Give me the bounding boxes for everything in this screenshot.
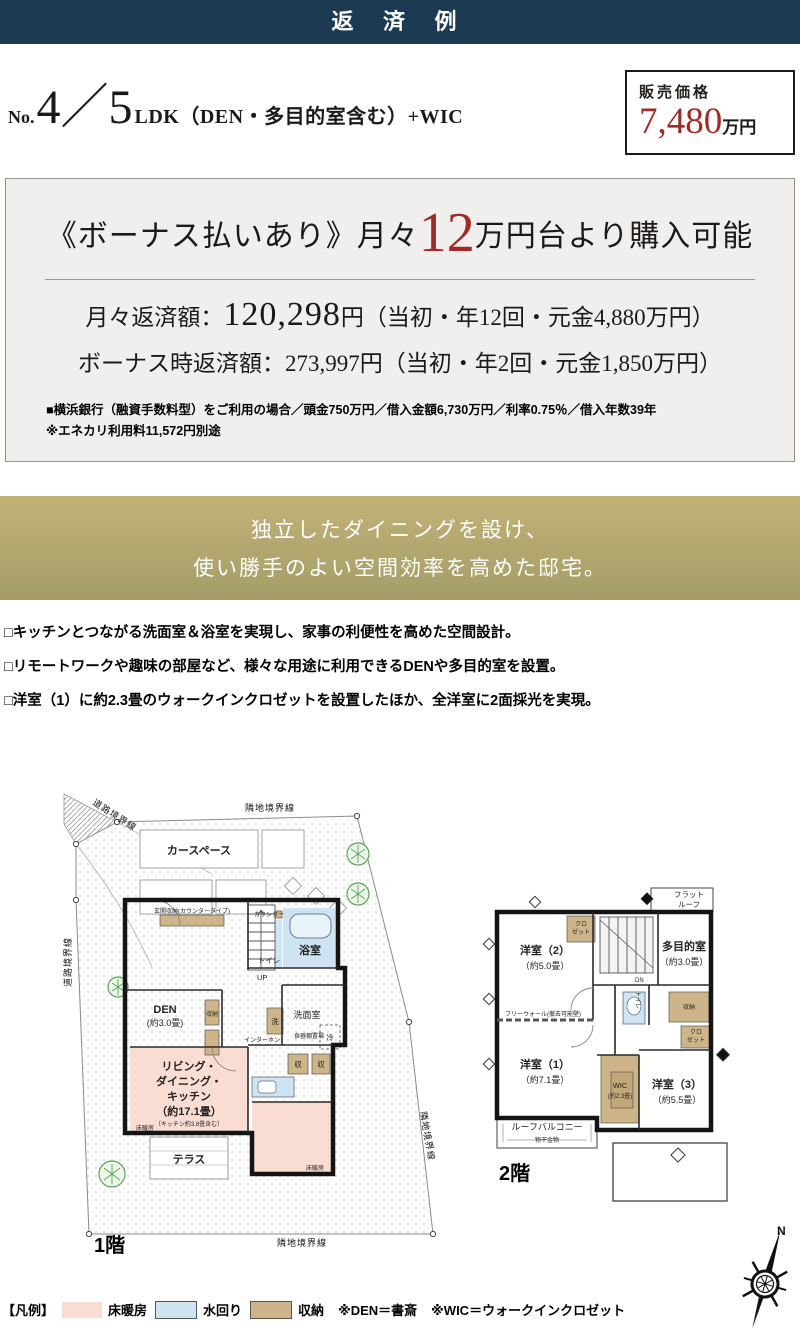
laundry-hw-label: 物干金物 [535, 1136, 559, 1144]
compass-icon: N [735, 1222, 797, 1332]
bonus-repayment-line: ボーナス時返済額：273,997円（当初・年2回・元金1,850万円） [6, 344, 794, 378]
dish-shelf-label: 食器棚置場 [294, 1032, 324, 1040]
ldk-size-label: （約17.1畳） [156, 1104, 221, 1118]
feature-item: □リモートワークや趣味の部屋など、様々な用途に利用できるDENや多目的室を設置。 [4, 650, 600, 684]
west2-size-label: （約5.0畳） [521, 960, 570, 971]
ldk-label-2: ダイニング・ [156, 1074, 222, 1088]
west1-size-label: （約7.1畳） [521, 1074, 570, 1085]
price-unit: 万円 [722, 118, 756, 137]
flat-roof-label-2: ルーフ [678, 900, 700, 909]
stairs-down [600, 917, 653, 973]
legend-label-water: 水回り [203, 1300, 242, 1319]
kitchen-sink [258, 1081, 276, 1093]
headline-open: 《ボーナス払いあり》月々 [47, 220, 419, 253]
boundary-bottom-label: 隣地境界線 [277, 1237, 327, 1248]
bathtub [290, 914, 331, 938]
feature-list: □キッチンとつながる洗面室＆浴室を実現し、家事の利便性を高めた空間設計。 □リモ… [4, 616, 600, 718]
feature-banner: 独立したダイニングを設け、 使い勝手のよい空間効率を高めた邸宅。 [0, 496, 800, 600]
page-title: 返 済 例 [0, 0, 800, 44]
ldk-floor-heating-area [130, 1047, 248, 1133]
monthly-amount: 120,298 [223, 296, 341, 333]
closet-a-label-2: ゼット [572, 928, 590, 936]
divider-line [45, 279, 755, 280]
up-label: UP [257, 973, 267, 982]
roof-balcony-label: ルーフバルコニー [511, 1122, 582, 1132]
west3-size-label: （約5.5畳） [653, 1094, 702, 1105]
floor2-label: 2階 [499, 1162, 530, 1185]
bank-note: ■横浜銀行（融資手数料型）をご利用の場合／頭金750万円／借入金額6,730万円… [46, 400, 794, 421]
den-size-label: (約3.0畳) [147, 1017, 184, 1028]
feature-banner-line1: 独立したダイニングを設け、 [0, 511, 800, 549]
storage2-label: 収納 [683, 1003, 695, 1011]
legend-swatch-water [155, 1301, 197, 1319]
closet-b-label-2: ゼット [687, 1036, 705, 1044]
monthly-detail: 円（当初・年12回・元金4,880万円） [341, 305, 715, 330]
boundary-left-label: 道路境界線 [62, 937, 73, 987]
price-label: 販売価格 [639, 81, 781, 102]
washer-label: 洗 [271, 1016, 279, 1026]
ldk-label-1: リビング・ [162, 1059, 217, 1073]
legend-note-den: ※DEN＝書斎 [338, 1300, 417, 1319]
feature-item: □キッチンとつながる洗面室＆浴室を実現し、家事の利便性を高めた空間設計。 [4, 616, 600, 650]
feature-banner-line2: 使い勝手のよい空間効率を高めた邸宅。 [0, 549, 800, 587]
wic-inner [611, 1072, 633, 1108]
plan-legend: 【凡例】 床暖房 水回り 収納 ※DEN＝書斎 ※WIC＝ウォークインクロゼット [2, 1300, 625, 1319]
flat-roof-label-1: フラット [674, 890, 704, 899]
storage-s1-label: 収 [294, 1060, 302, 1069]
entrance-storage-label: 玄関収納(カウンタータイプ) [154, 907, 230, 915]
repayment-headline: 《ボーナス払いあり》月々12万円台より購入可能 [6, 205, 794, 261]
floor-heating-label-1: 床暖房 [136, 1124, 154, 1132]
headline-close: 万円台より購入可能 [475, 220, 753, 253]
flyer-page: 返 済 例 No. 4／5 LDK（DEN・多目的室含む）+WIC 販売価格 7… [0, 0, 800, 1332]
wic-size-label: (約2.3畳) [608, 1092, 632, 1100]
multi-room-size-label: （約3.0畳） [660, 956, 709, 967]
listing-type: LDK（DEN・多目的室含む）+WIC [135, 100, 464, 129]
bonus-label: ボーナス時返済額： [78, 351, 285, 376]
toilet-label: トイレ [258, 956, 281, 965]
den-label: DEN [153, 1004, 176, 1016]
entrance-counter-storage [160, 915, 224, 926]
door-arc-2 [571, 1025, 593, 1047]
ldk-note-label: （キッチン約3.8畳含む） [155, 1120, 223, 1128]
repayment-panel: 《ボーナス払いあり》月々12万円台より購入可能 月々返済額：120,298円（当… [5, 178, 795, 462]
closet-a-label-1: クロ [575, 921, 587, 928]
price-box: 販売価格 7,480万円 [625, 70, 795, 155]
terrace-label: テラス [173, 1153, 206, 1166]
floor-heating-label-2: 床暖房 [306, 1164, 324, 1172]
legend-title: 【凡例】 [2, 1300, 54, 1319]
closet-a-area [567, 916, 595, 942]
fridge-label: 冷 [326, 1032, 334, 1042]
listing-no-label: No. [8, 107, 35, 128]
legend-swatch-storage [250, 1301, 292, 1319]
listing-number: 4／5 [37, 84, 133, 132]
headline-number: 12 [419, 202, 475, 264]
legend-swatch-floor-heating [62, 1302, 102, 1318]
loan-notes: ■横浜銀行（融資手数料型）をご利用の場合／頭金750万円／借入金額6,730万円… [46, 400, 794, 442]
bath-label: 浴室 [299, 943, 321, 957]
listing-heading: No. 4／5 LDK（DEN・多目的室含む）+WIC [8, 84, 463, 132]
price-amount: 7,480 [639, 101, 722, 142]
floorplan-2f-drawing: フラット ルーフ DN [483, 880, 795, 1222]
intercom-label: インターホン [244, 1036, 280, 1044]
west3-label: 洋室（3） [652, 1077, 702, 1091]
monthly-label: 月々返済額： [85, 305, 223, 330]
west2-label: 洋室（2） [520, 943, 570, 957]
washroom-label: 洗面室 [293, 1009, 320, 1020]
roof-below-outline [613, 1143, 727, 1201]
ldk-label-3: キッチン [167, 1090, 211, 1103]
compass-north-label: N [777, 1224, 786, 1238]
boundary-top-label: 隣地境界線 [245, 802, 295, 813]
bonus-amount: 273,997 [285, 351, 360, 376]
den-storage-label: 収納 [206, 1010, 218, 1018]
legend-note-wic: ※WIC＝ウォークインクロゼット [431, 1300, 625, 1319]
free-wall-label: フリーウォール(撤去可能壁) [505, 1010, 581, 1018]
floor1-label: 1階 [94, 1234, 125, 1254]
door-arc-1 [571, 988, 593, 1010]
dining-floor-heating-area [252, 1102, 333, 1174]
monthly-repayment-line: 月々返済額：120,298円（当初・年12回・元金4,880万円） [6, 296, 794, 334]
west1-label: 洋室（1） [520, 1057, 570, 1071]
car-space-label: カースペース [167, 844, 231, 857]
multi-room-label: 多目的室 [662, 939, 706, 953]
storage-s2-label: 収 [317, 1060, 325, 1069]
toilet2-label: トイレ [634, 991, 640, 1009]
energy-note: ※エネカリ利用料11,572円別途 [46, 421, 794, 442]
dn-label: DN [635, 978, 644, 984]
wic-label: WIC [613, 1081, 628, 1090]
legend-label-floor-heating: 床暖房 [108, 1300, 147, 1319]
floorplan-1f-drawing: カースペース [62, 782, 460, 1254]
legend-label-storage: 収納 [298, 1300, 324, 1319]
closet-b-label-1: クロ [690, 1029, 702, 1036]
feature-item: □洋室（1）に約2.3畳のウォークインクロゼットを設置したほか、全洋室に2面採光… [4, 684, 600, 718]
toilet-counter-label: カウンター [254, 911, 284, 919]
bonus-detail: 円（当初・年2回・元金1,850万円） [360, 351, 722, 376]
